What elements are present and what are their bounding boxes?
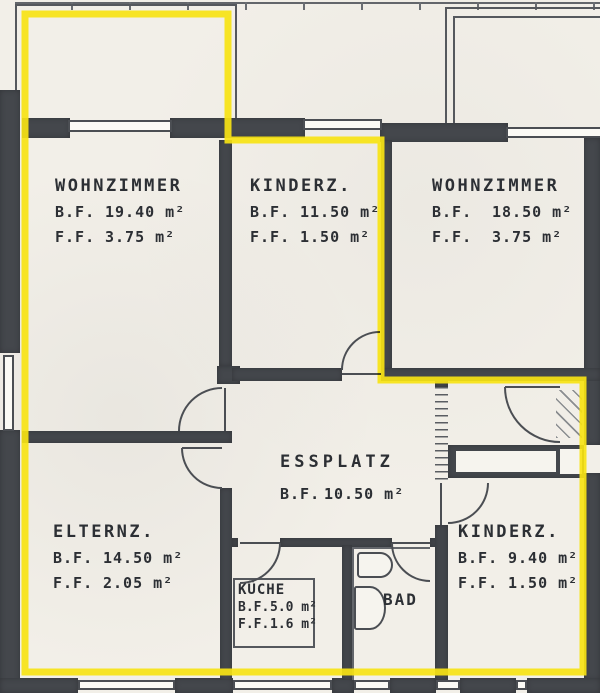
door-arc [505,387,560,442]
room-kinderz-mid: KINDERZ. B.F.11.50 m² F.F.1.50 m² [250,176,380,246]
wall [280,538,392,547]
area-value: 14.50 m² [103,549,183,567]
room-bad: BAD [383,590,418,609]
wall [332,678,354,693]
wall [22,431,232,443]
area-value: 19.40 m² [105,203,185,221]
area-value: 9.40 m² [508,549,578,567]
area-key: F.F. [55,228,105,246]
balcony-right-outline-inner [453,16,600,125]
room-elternz: ELTERNZ. B.F.14.50 m² F.F.2.05 m² [53,522,183,592]
area-key: F.F. [458,574,508,592]
area-value: 2.05 m² [103,574,173,592]
shaft [560,449,582,474]
area-key: F.F. [432,228,492,246]
wall [435,525,448,680]
room-wohnzimmer-right: WOHNZIMMER B.F.18.50 m² F.F.3.75 m² [432,176,572,246]
wall [0,90,20,353]
door-arc [179,388,222,431]
door-arc [240,543,280,583]
window [436,680,460,690]
area-key: F.F. [238,617,270,632]
floor-plan: WOHNZIMMER B.F.19.40 m² F.F.3.75 m² KIND… [0,0,600,693]
wall [232,538,238,547]
area-value: 3.75 m² [105,228,175,246]
area-key: B.F. [250,203,300,221]
window [78,680,175,690]
room-kueche: KÜCHE B.F.5.0 m² F.F.1.6 m² [238,582,317,632]
wall [390,678,436,693]
window [68,120,172,132]
wall [175,678,233,693]
entry-hatch-marks [556,390,582,438]
area-value: 1.6 m² [270,617,317,632]
window [354,680,390,690]
wall [22,118,70,138]
room-kinderz-right: KINDERZ. B.F.9.40 m² F.F.1.50 m² [458,522,578,592]
window [3,355,14,431]
wall [170,118,305,138]
window [303,119,382,130]
hatched-partition [435,387,448,483]
area-key: B.F. [432,203,492,221]
sink [354,586,386,630]
wall [220,488,232,680]
door-arc [448,483,488,523]
area-key: B.F. [55,203,105,221]
room-essplatz: ESSPLATZ B.F.10.50 m² [280,452,404,503]
area-key: F.F. [250,228,300,246]
room-name: WOHNZIMMER [55,176,185,196]
area-value: 10.50 m² [324,485,404,503]
area-key: F.F. [53,574,103,592]
wall [380,123,508,142]
area-key: B.F. [238,600,270,615]
area-key: B.F. [280,485,324,503]
room-wohnzimmer-left: WOHNZIMMER B.F.19.40 m² F.F.3.75 m² [55,176,185,246]
room-name: WOHNZIMMER [432,176,572,196]
wall [0,430,20,693]
room-name: KINDERZ. [458,522,578,542]
toilet [357,552,393,578]
area-value: 11.50 m² [300,203,380,221]
built-in-closet [456,451,556,472]
door-arc [342,332,380,370]
wall [0,678,78,693]
wall [381,140,392,370]
wall [342,545,352,680]
area-value: 5.0 m² [270,600,317,615]
wall [584,473,600,680]
window [506,127,600,138]
area-key: B.F. [458,549,508,567]
room-name: ESSPLATZ [280,452,404,472]
window [516,680,527,690]
area-key: B.F. [53,549,103,567]
door-arc [182,448,222,488]
wall [219,140,232,366]
balcony-left-outline [15,4,237,130]
wall [527,678,600,693]
wall [584,138,600,445]
wall [460,678,516,693]
room-name: KÜCHE [238,582,317,598]
window [233,680,332,690]
area-value: 1.50 m² [508,574,578,592]
area-value: 1.50 m² [300,228,370,246]
room-name: KINDERZ. [250,176,380,196]
area-value: 18.50 m² [492,203,572,221]
area-value: 3.75 m² [492,228,562,246]
room-name: BAD [383,590,418,609]
wall [381,368,600,381]
wall [232,368,342,381]
room-name: ELTERNZ. [53,522,183,542]
bath-partition-line [352,547,430,549]
